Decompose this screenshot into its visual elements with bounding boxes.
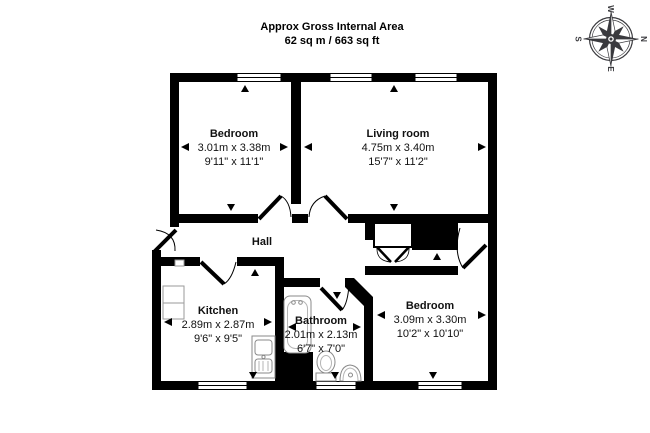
floorplan-drawing: N E S W [0,0,650,433]
plan-title: Approx Gross Internal Area 62 sq m / 663… [232,21,432,48]
closet [374,223,412,247]
hall-name: Hall [222,235,302,249]
compass-e-label: E [606,66,615,72]
window-bedroom2 [418,382,462,390]
window-living-right [415,74,457,82]
bedroom2-name: Bedroom [350,299,510,313]
hall-label: Hall [222,235,302,249]
door-bedroom1 [259,196,291,219]
dimension-arrow [251,269,259,276]
dimension-arrow [433,253,441,260]
bathroom-corner-block [284,352,313,382]
doors [154,196,486,310]
floorplan-canvas: N E S W Approx Gross Internal Area 62 sq… [0,0,650,433]
window-living-left [330,74,372,82]
basin [340,365,361,381]
bedroom2-label: Bedroom 3.09m x 3.30m 10'2" x 10'10" [350,299,510,341]
dimension-arrow [429,372,437,379]
living-room-imperial: 15'7" x 11'2" [318,155,478,169]
dimension-arrow [241,85,249,92]
living-room-label: Living room 4.75m x 3.40m 15'7" x 11'2" [318,127,478,169]
living-room-name: Living room [318,127,478,141]
compass-s-label: S [574,36,583,42]
window-kitchen [198,382,247,390]
door-bathroom [321,284,349,310]
bedroom1-label: Bedroom 3.01m x 3.38m 9'11" x 11'1" [154,127,314,169]
compass-rose: N E S W [574,5,649,72]
window-bathroom [316,382,356,390]
dimension-arrow [390,204,398,211]
dimension-arrow [333,292,341,299]
compass-w-label: W [606,5,615,13]
bathroom-imperial: 6'7" x 7'0" [261,342,381,356]
door-entrance [154,230,176,252]
plan-title-line1: Approx Gross Internal Area [232,21,432,35]
door-living [309,196,347,219]
dimension-arrow [390,85,398,92]
dimension-arrow [478,143,486,151]
door-kitchen [201,262,236,284]
plan-title-line2: 62 sq m / 663 sq ft [232,35,432,49]
window-bedroom1 [237,74,281,82]
dimension-arrow [227,204,235,211]
living-room-metric: 4.75m x 3.40m [318,141,478,155]
compass-n-label: N [639,36,648,42]
chimney-block [412,214,458,250]
door-bedroom2 [457,228,486,268]
bedroom1-name: Bedroom [154,127,314,141]
closet-doors [377,247,409,262]
bedroom1-metric: 3.01m x 3.38m [154,141,314,155]
bedroom2-imperial: 10'2" x 10'10" [350,327,510,341]
bedroom2-metric: 3.09m x 3.30m [350,313,510,327]
bedroom1-imperial: 9'11" x 11'1" [154,155,314,169]
